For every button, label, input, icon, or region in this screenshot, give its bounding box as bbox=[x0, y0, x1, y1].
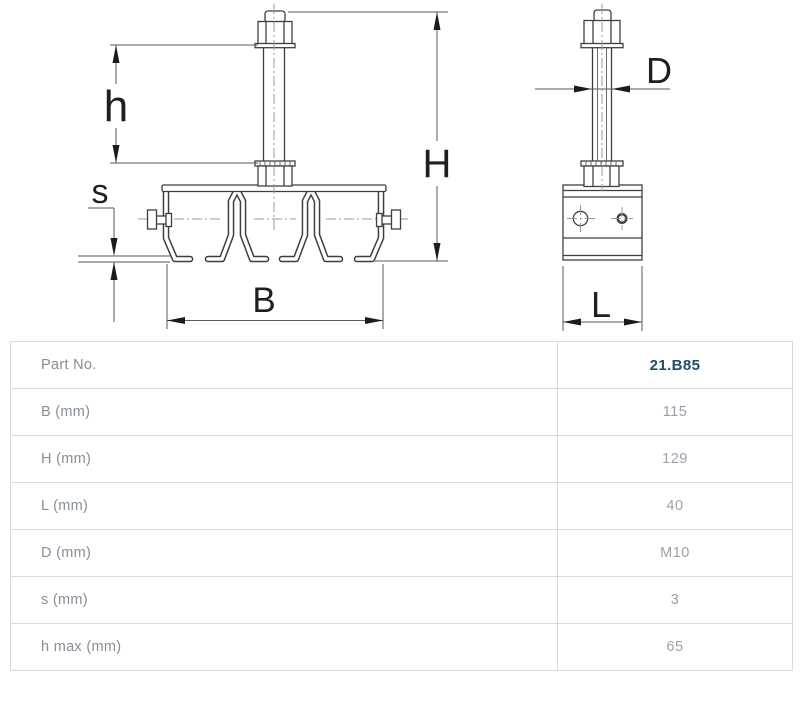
dimension-label-h: h bbox=[104, 82, 128, 131]
spec-label: B (mm) bbox=[11, 389, 558, 436]
spec-value: 3 bbox=[558, 577, 793, 624]
technical-drawing: h s B H D bbox=[0, 0, 800, 341]
spec-table: Part No. 21.B85 B (mm) 115 H (mm) 129 L … bbox=[10, 341, 793, 671]
spec-value: 129 bbox=[558, 436, 793, 483]
dimension-s: s bbox=[78, 173, 170, 322]
spec-label: L (mm) bbox=[11, 483, 558, 530]
spec-label: H (mm) bbox=[11, 436, 558, 483]
front-view bbox=[138, 4, 410, 259]
dimension-label-H: H bbox=[423, 142, 452, 186]
table-row: H (mm) 129 bbox=[11, 436, 793, 483]
side-screw-right bbox=[377, 210, 401, 229]
spec-value: 115 bbox=[558, 389, 793, 436]
dimension-L: L bbox=[563, 266, 642, 331]
table-row: L (mm) 40 bbox=[11, 483, 793, 530]
page: h s B H D bbox=[0, 0, 800, 711]
spec-value: 21.B85 bbox=[558, 342, 793, 389]
part-number-value[interactable]: 21.B85 bbox=[650, 357, 701, 374]
spec-value: 65 bbox=[558, 624, 793, 671]
spec-label: Part No. bbox=[11, 342, 558, 389]
dimension-H: H bbox=[288, 12, 451, 261]
table-row: D (mm) M10 bbox=[11, 530, 793, 577]
spec-table-body: Part No. 21.B85 B (mm) 115 H (mm) 129 L … bbox=[11, 342, 793, 671]
table-row: Part No. 21.B85 bbox=[11, 342, 793, 389]
table-row: B (mm) 115 bbox=[11, 389, 793, 436]
table-row: h max (mm) 65 bbox=[11, 624, 793, 671]
dimension-label-s: s bbox=[92, 173, 109, 211]
threaded-rod-front bbox=[255, 11, 295, 186]
table-row: s (mm) 3 bbox=[11, 577, 793, 624]
spec-value: 40 bbox=[558, 483, 793, 530]
dimension-label-D: D bbox=[646, 50, 672, 91]
spec-label: D (mm) bbox=[11, 530, 558, 577]
dimension-B: B bbox=[167, 264, 383, 329]
dimension-label-B: B bbox=[252, 281, 275, 320]
dimension-label-L: L bbox=[591, 284, 611, 325]
side-view bbox=[563, 4, 642, 260]
dimension-h: h bbox=[104, 45, 258, 163]
spec-label: s (mm) bbox=[11, 577, 558, 624]
spec-value: M10 bbox=[558, 530, 793, 577]
side-screw-left bbox=[148, 210, 172, 229]
spec-label: h max (mm) bbox=[11, 624, 558, 671]
